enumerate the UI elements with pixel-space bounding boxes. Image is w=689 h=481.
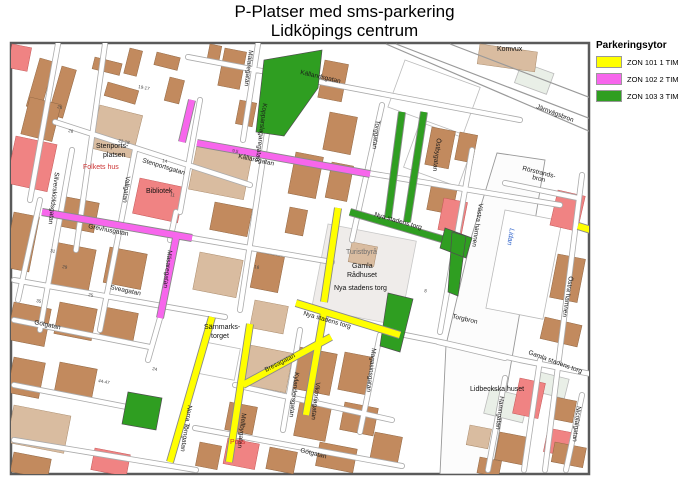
label-turistbyra: Turistbyrå [346,248,377,256]
legend-item-zone101: ZON 101 1 TIM [596,56,688,68]
legend-title: Parkeringsytor [596,40,688,51]
legend-label-zone101: ZON 101 1 TIM [627,58,679,67]
label-gamla-radhuset-1: Gamla [352,263,373,270]
label-bibliotek: Bibliotek [146,188,173,195]
label-sarnmarkstorget-1: Särnmarks- [204,324,241,331]
label-folkets-hus: Folkets hus [83,164,119,171]
map-canvas: Källandsgatan Kållaregatan Grevhusgatan … [0,0,689,481]
label-stenportsplatsen-2: platsen [103,152,126,159]
legend-item-zone103: ZON 103 3 TIM [596,90,688,102]
label-polis: Polis [230,439,246,446]
legend-item-zone102: ZON 102 2 TIM [596,73,688,85]
label-komvux: Komvux [497,46,523,53]
legend-label-zone103: ZON 103 3 TIM [627,92,679,101]
legend-label-zone102: ZON 102 2 TIM [627,75,679,84]
label-sarnmarkstorget-2: torget [211,333,229,340]
label-lidbeckska-huset: Lidbeckska huset [470,386,524,393]
legend: Parkeringsytor ZON 101 1 TIM ZON 102 2 T… [596,40,688,107]
label-gamla-radhuset-2: Rådhuset [347,271,377,279]
label-nya-stadens-torg-square: Nya stadens torg [334,285,387,292]
legend-swatch-zone102 [596,73,622,85]
legend-swatch-zone103 [596,90,622,102]
legend-swatch-zone101 [596,56,622,68]
